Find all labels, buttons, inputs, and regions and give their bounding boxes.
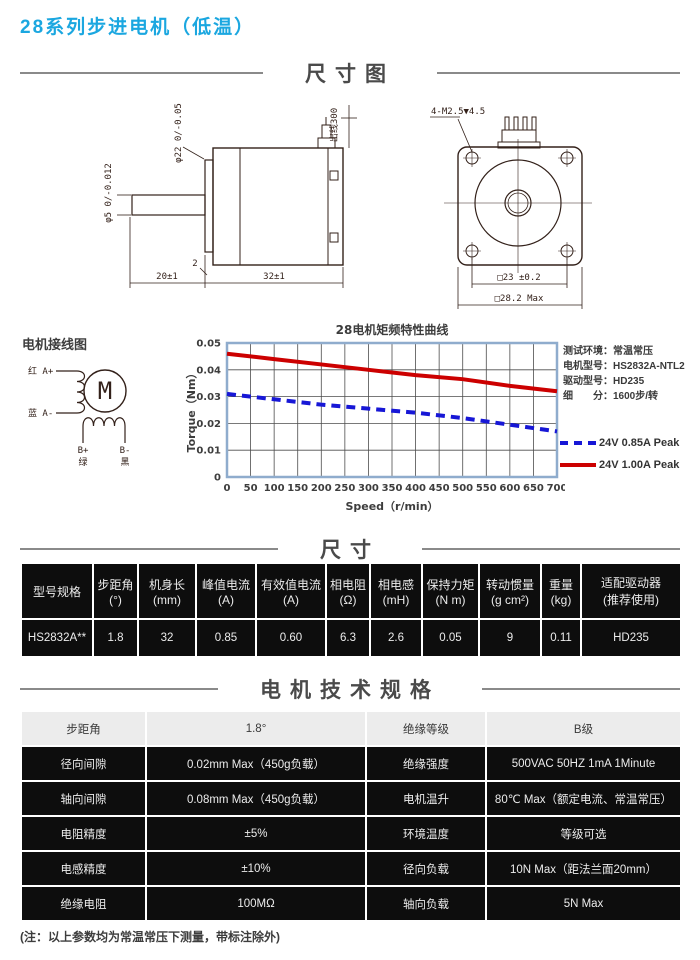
spec-cell: 1.8	[93, 619, 138, 657]
tech-spec-table: 步距角1.8°绝缘等级B级径向间隙0.02mm Max（450g负载）绝缘强度5…	[20, 710, 682, 922]
tech-cell: 100MΩ	[146, 886, 366, 921]
section-title: 尺寸	[320, 534, 380, 564]
spec-cell: 6.3	[326, 619, 370, 657]
tech-cell: 1.8°	[146, 711, 366, 746]
tech-table-row: 电感精度±10%径向负载10N Max（距法兰面20mm）	[21, 851, 681, 886]
tech-cell: 绝缘电阻	[21, 886, 146, 921]
dim-shaft-length: 20±1	[156, 272, 178, 282]
divider-line	[437, 72, 680, 74]
tech-cell: 80℃ Max（额定电流、常温常压）	[486, 781, 681, 816]
section-title: 尺寸图	[305, 58, 395, 88]
y-tick-label: 0.02	[196, 419, 221, 430]
x-tick-label: 550	[476, 483, 497, 494]
test-conditions: 测试环境：常温常压电机型号：HS2832A-NTL2驱动型号：HD235细 分：…	[563, 344, 698, 404]
tech-cell: 10N Max（距法兰面20mm）	[486, 851, 681, 886]
tech-table-row: 步距角1.8°绝缘等级B级	[21, 711, 681, 746]
tech-cell: 5N Max	[486, 886, 681, 921]
spec-cell: HD235	[581, 619, 681, 657]
tech-cell: 步距角	[21, 711, 146, 746]
x-tick-label: 100	[264, 483, 285, 494]
tech-cell: 0.08mm Max（450g负载）	[146, 781, 366, 816]
wire-b-minus-label: B-	[120, 446, 131, 456]
x-tick-label: 450	[429, 483, 450, 494]
spec-column-header: 型号规格	[21, 563, 93, 619]
front-view-drawing: 4-M2.5▼4.5 □23 ±0.2 □28.2 Max	[430, 95, 695, 313]
wiring-diagram-title: 电机接线图	[22, 334, 87, 353]
spec-column-header: 保持力矩 (N m)	[422, 563, 479, 619]
footnote: (注：以上参数均为常温常压下测量，带标注除外)	[20, 928, 280, 945]
tech-cell: 500VAC 50HZ 1mA 1Minute	[486, 746, 681, 781]
dim-shaft-diameter: φ5 0/-0.012	[104, 163, 114, 223]
tech-table-row: 径向间隙0.02mm Max（450g负载）绝缘强度500VAC 50HZ 1m…	[21, 746, 681, 781]
x-tick-label: 300	[358, 483, 379, 494]
tech-cell: 绝缘强度	[366, 746, 486, 781]
spec-cell: 0.85	[196, 619, 256, 657]
y-tick-label: 0.05	[196, 339, 221, 350]
test-condition-row: 细 分：1600步/转	[563, 389, 698, 404]
tech-cell: 轴向间隙	[21, 781, 146, 816]
x-tick-label: 650	[523, 483, 544, 494]
y-tick-label: 0.03	[196, 392, 221, 403]
spec-table-row: HS2832A**1.8320.850.606.32.60.0590.11HD2…	[21, 619, 681, 657]
tech-cell: 径向间隙	[21, 746, 146, 781]
tech-cell: 电感精度	[21, 851, 146, 886]
x-tick-label: 600	[499, 483, 520, 494]
divider-line	[20, 548, 278, 550]
divider-line	[482, 688, 680, 690]
spec-table: 型号规格步距角 (°)机身长 (mm)峰值电流 (A)有效值电流 (A)相电阻 …	[20, 562, 682, 658]
wire-b-minus-color: 黑	[120, 457, 129, 468]
legend-label: 24V 0.85A Peak	[599, 437, 679, 449]
legend-label: 24V 1.00A Peak	[599, 459, 679, 471]
spec-column-header: 步距角 (°)	[93, 563, 138, 619]
section-header-tech-specs: 电机技术规格	[20, 674, 680, 704]
spec-column-header: 转动惯量 (g cm²)	[479, 563, 541, 619]
section-title: 电机技术规格	[260, 674, 440, 704]
x-tick-label: 0	[224, 483, 231, 494]
x-tick-label: 50	[244, 483, 258, 494]
dim-body-length: 32±1	[263, 272, 285, 282]
test-condition-row: 驱动型号：HD235	[563, 374, 698, 389]
tech-cell: 等级可选	[486, 816, 681, 851]
x-tick-label: 350	[382, 483, 403, 494]
dim-hole-pitch: □23 ±0.2	[497, 273, 540, 283]
spec-column-header: 峰值电流 (A)	[196, 563, 256, 619]
wire-b-plus-color: 绿	[78, 456, 87, 468]
x-tick-label: 200	[311, 483, 332, 494]
section-header-size: 尺寸	[20, 534, 680, 564]
y-tick-label: 0.01	[196, 446, 221, 457]
spec-column-header: 重量 (kg)	[541, 563, 581, 619]
tech-cell: 绝缘等级	[366, 711, 486, 746]
spec-cell: 0.60	[256, 619, 326, 657]
divider-line	[20, 688, 218, 690]
spec-cell: 9	[479, 619, 541, 657]
wiring-diagram: M 红 A+ 蓝 A- B+ B- 绿 黑	[20, 356, 170, 478]
tech-cell: 电机温升	[366, 781, 486, 816]
dim-pilot-diameter: φ22 0/-0.05	[174, 103, 184, 163]
spec-cell: 0.05	[422, 619, 479, 657]
chart-title: 28电机矩频特性曲线	[336, 322, 449, 337]
page-title: 28系列步进电机（低温）	[20, 12, 255, 39]
spec-column-header: 相电阻 (Ω)	[326, 563, 370, 619]
wire-a-minus-label: 蓝 A-	[28, 407, 53, 419]
spec-column-header: 有效值电流 (A)	[256, 563, 326, 619]
x-axis-label: Speed（r/min）	[345, 500, 438, 513]
tech-cell: 电阻精度	[21, 816, 146, 851]
tech-cell: 环境温度	[366, 816, 486, 851]
motor-symbol: M	[98, 377, 112, 405]
spec-column-header: 适配驱动器 (推荐使用)	[581, 563, 681, 619]
tech-cell: ±5%	[146, 816, 366, 851]
wire-a-plus-label: 红 A+	[28, 365, 54, 377]
x-tick-label: 150	[287, 483, 308, 494]
test-condition-row: 测试环境：常温常压	[563, 344, 698, 359]
x-tick-label: 500	[452, 483, 473, 494]
spec-cell: HS2832A**	[21, 619, 93, 657]
spec-cell: 2.6	[370, 619, 422, 657]
tech-table-row: 电阻精度±5%环境温度等级可选	[21, 816, 681, 851]
tech-cell: 径向负载	[366, 851, 486, 886]
divider-line	[422, 548, 680, 550]
x-tick-label: 400	[405, 483, 426, 494]
torque-frequency-chart: 0501001502002503003504004505005506006507…	[185, 320, 565, 516]
legend-solid-line	[560, 463, 596, 467]
y-tick-label: 0	[214, 473, 221, 484]
section-header-dimension-drawing: 尺寸图	[20, 58, 680, 88]
x-tick-label: 250	[334, 483, 355, 494]
x-tick-label: 700	[547, 483, 565, 494]
legend-entry-085A: 24V 0.85A Peak	[560, 437, 679, 449]
dim-lead-wire: 出线300	[328, 108, 340, 142]
divider-line	[20, 72, 263, 74]
tech-table-row: 轴向间隙0.08mm Max（450g负载）电机温升80℃ Max（额定电流、常…	[21, 781, 681, 816]
spec-cell: 0.11	[541, 619, 581, 657]
tech-cell: B级	[486, 711, 681, 746]
wire-b-plus-label: B+	[78, 446, 89, 456]
y-tick-label: 0.04	[196, 365, 221, 376]
spec-column-header: 机身长 (mm)	[138, 563, 196, 619]
side-view-drawing: 20±1 32±1 2 φ5 0/-0.012 φ22 0/-0.05 出线30…	[95, 95, 395, 313]
tech-cell: 0.02mm Max（450g负载）	[146, 746, 366, 781]
legend-entry-100A: 24V 1.00A Peak	[560, 459, 679, 471]
y-axis-label: Torque（Nm）	[185, 368, 198, 453]
tech-cell: ±10%	[146, 851, 366, 886]
tech-table-row: 绝缘电阻100MΩ轴向负载5N Max	[21, 886, 681, 921]
dim-pilot-depth: 2	[192, 259, 197, 269]
test-condition-row: 电机型号：HS2832A-NTL2	[563, 359, 698, 374]
spec-column-header: 相电感 (mH)	[370, 563, 422, 619]
tech-cell: 轴向负载	[366, 886, 486, 921]
legend-dashed-line	[560, 441, 596, 445]
dim-flange-width: □28.2 Max	[495, 294, 544, 304]
dim-mounting-screws: 4-M2.5▼4.5	[431, 107, 485, 117]
spec-cell: 32	[138, 619, 196, 657]
